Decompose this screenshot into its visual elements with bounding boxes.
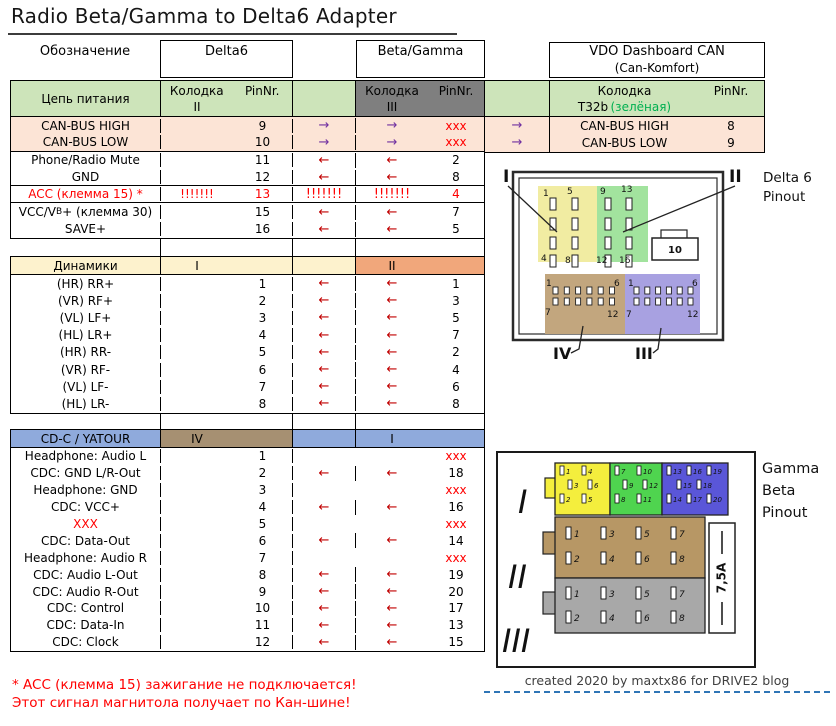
signal-label-cell: (HL) LR- (11, 397, 161, 411)
spacer-cell (233, 430, 293, 447)
table-row: CAN-BUS LOW10→→xxx (11, 134, 484, 151)
delta6-pin-cell: 15 (233, 205, 293, 219)
signal-label-cell: CDC: Data-In (11, 618, 161, 632)
table-row: CAN-BUS HIGH9→→xxx (11, 117, 484, 134)
vdo-arrow-column: →→ (484, 80, 550, 153)
spacer-cell (293, 81, 356, 116)
svg-text:1: 1 (574, 590, 580, 600)
credit-line: created 2020 by maxtx86 for DRIVE2 blog (484, 673, 830, 693)
delta6-pin-cell: 2 (233, 466, 293, 480)
signal-label-cell: CDC: Data-Out (11, 534, 161, 548)
signal-label-cell: Headphone: GND (11, 483, 161, 497)
svg-text:Beta: Beta (762, 483, 795, 499)
direction-arrow-cell: ← (293, 153, 356, 168)
column-divider (292, 239, 293, 256)
vdo-arrow-cell: → (485, 118, 549, 133)
signal-label-cell: (VR) RF- (11, 363, 161, 377)
svg-text:6: 6 (594, 482, 599, 490)
delta6-pin-cell: 5 (233, 345, 293, 359)
table-row: (HR) RR-5←←2 (11, 344, 484, 361)
svg-text:I: I (503, 167, 509, 187)
spacer-cell (485, 81, 549, 116)
delta6-pin-cell: 11 (233, 153, 293, 167)
delta6-pin-cell: 4 (233, 500, 293, 514)
gamma-beta-pinout-diagram: IIIIII1436257109128111316191518141720135… (496, 451, 830, 669)
delta6-block-header: КолодкаPinNr. II (161, 81, 293, 116)
table-row: CDC: Control10←←17 (11, 600, 484, 617)
signal-label-cell: XXX (11, 517, 161, 531)
power-header-row: Цепь питания КолодкаPinNr. II КолодкаPin… (11, 81, 484, 117)
beta-gamma-pin-cell: 1 (428, 277, 484, 291)
direction-arrow-cell: ← (293, 635, 356, 650)
svg-text:6: 6 (644, 555, 650, 565)
svg-text:8: 8 (679, 614, 685, 624)
table-row: CDC: Audio L-Out8←←19 (11, 566, 484, 583)
beta-gamma-arrow-cell: ← (356, 222, 428, 237)
column-divider (160, 239, 161, 256)
beta-gamma-pin-cell: 14 (428, 534, 484, 548)
delta6-pin-cell: 5 (233, 517, 293, 531)
beta-gamma-arrow-cell: ← (356, 500, 428, 515)
beta-gamma-arrow-cell: ← (356, 153, 428, 168)
svg-text:16: 16 (619, 256, 631, 266)
table-row: (VL) LF+3←←5 (11, 309, 484, 326)
vdo-pin-cell: 9 (699, 136, 763, 150)
signal-label-cell: (HR) RR+ (11, 277, 161, 291)
vdo-signal-label-cell: CAN-BUS HIGH (550, 119, 699, 133)
svg-text:11: 11 (643, 496, 652, 504)
beta-gamma-block-header: КолодкаPinNr. III (356, 81, 484, 116)
signal-label-cell: SAVE+ (11, 222, 161, 236)
vdo-pin-cell: 8 (699, 119, 763, 133)
spacer-cell (428, 430, 484, 447)
beta-gamma-arrow-cell: ← (356, 618, 428, 633)
svg-text:7: 7 (679, 530, 685, 540)
delta6-pin-cell: 1 (233, 449, 293, 463)
table-row: (HR) RR+1←←1 (11, 275, 484, 292)
direction-arrow-cell: → (293, 118, 356, 133)
direction-arrow-cell: ← (293, 396, 356, 411)
delta6-pin-cell: 7 (233, 551, 293, 565)
beta-gamma-pin-cell: 2 (428, 345, 484, 359)
svg-text:18: 18 (703, 482, 712, 490)
svg-text:1: 1 (574, 530, 580, 540)
beta-gamma-pin-cell: 4 (428, 363, 484, 377)
svg-text:Delta 6: Delta 6 (763, 170, 812, 186)
beta-gamma-arrow-cell: → (356, 118, 428, 133)
beta-gamma-pin-cell: 5 (428, 311, 484, 325)
svg-text:4: 4 (541, 254, 547, 264)
signal-label-cell: (VL) LF+ (11, 311, 161, 325)
signal-label-cell: Phone/Radio Mute (11, 153, 161, 167)
delta6-pin-cell: 1 (233, 277, 293, 291)
beta-gamma-arrow-cell: ← (356, 345, 428, 360)
svg-text:9: 9 (629, 482, 634, 490)
beta-gamma-arrow-cell: ← (356, 328, 428, 343)
cdc-section-table: CD-C / YATOUR IV I Headphone: Audio L1xx… (10, 429, 485, 652)
svg-text:10: 10 (668, 245, 682, 256)
signal-label-cell: CDC: Audio R-Out (11, 585, 161, 599)
signal-label-cell: ACC (клемма 15) * (11, 187, 161, 201)
delta6-pin-cell: 3 (233, 311, 293, 325)
svg-text:IV: IV (553, 344, 572, 363)
delta6-pin-cell: 7 (233, 380, 293, 394)
signal-label-cell: CDC: Clock (11, 635, 161, 649)
beta-gamma-pin-cell: 4 (428, 187, 484, 201)
direction-arrow-cell: ← (293, 618, 356, 633)
footnote-line2: Этот сигнал магнитола получает по Кан-ши… (12, 695, 357, 713)
table-row: Phone/Radio Mute11←←2 (11, 152, 484, 169)
delta6-pinout-svg: 15489131216101671216712IIIIVIIIDelta 6Pi… (495, 158, 830, 366)
vdo-subtitle: (Can-Komfort) (550, 60, 764, 76)
beta-gamma-arrow-cell: ← (356, 567, 428, 582)
vdo-title: VDO Dashboard CAN (550, 44, 764, 60)
pinnr-label: PinNr. (699, 83, 763, 99)
beta-gamma-pin-cell: xxx (428, 135, 484, 149)
direction-arrow-cell: ← (293, 276, 356, 291)
svg-text:7: 7 (621, 468, 626, 476)
svg-text:4: 4 (609, 555, 615, 565)
kolodka-color-note: (зелёная) (611, 99, 672, 115)
delta6-pinout-diagram: 15489131216101671216712IIIIVIIIDelta 6Pi… (495, 158, 830, 366)
delta6-pin-cell: 6 (233, 363, 293, 377)
table-row: Headphone: GND3xxx (11, 482, 484, 499)
delta6-pin-cell: 8 (233, 568, 293, 582)
direction-arrow-cell: → (293, 135, 356, 150)
beta-gamma-arrow-cell: ← (356, 293, 428, 308)
kolodka-number: T32b (578, 99, 608, 115)
svg-text:13: 13 (673, 468, 682, 476)
svg-text:II: II (508, 558, 527, 596)
kolodka-label: Колодка (161, 83, 232, 99)
signal-label-cell: CAN-BUS LOW (11, 135, 161, 149)
svg-text:7,5A: 7,5A (715, 562, 729, 593)
svg-text:3: 3 (609, 530, 615, 540)
beta-gamma-arrow-cell: ← (356, 170, 428, 185)
beta-gamma-pin-cell: 7 (428, 328, 484, 342)
vdo-can-table: КолодкаPinNr. T32b (зелёная) CAN-BUS HIG… (549, 80, 765, 153)
signal-label-cell: GND (11, 170, 161, 184)
table-row: VCC/VB+ (клемма 30)15←←7 (11, 203, 484, 220)
svg-text:5: 5 (644, 530, 650, 540)
column-divider (160, 413, 161, 429)
speakers-section-table: Динамики I II (HR) RR+1←←1(VR) RF+2←←3(V… (10, 256, 485, 414)
beta-gamma-arrow-cell: ← (356, 584, 428, 599)
svg-text:14: 14 (673, 496, 682, 504)
delta6-pin-cell: 3 (233, 483, 293, 497)
spacer-cell (233, 257, 293, 274)
direction-arrow-cell: ← (293, 328, 356, 343)
table-row: CDC: VCC+4←←16 (11, 499, 484, 516)
delta6-pin-cell: 4 (233, 328, 293, 342)
table-row: (VR) RF+2←←3 (11, 292, 484, 309)
direction-arrow-cell: ← (293, 310, 356, 325)
pinnr-label: PinNr. (428, 83, 484, 99)
svg-text:5: 5 (567, 187, 573, 197)
svg-text:12: 12 (687, 310, 698, 320)
svg-text:12: 12 (607, 310, 618, 320)
delta6-pin-cell: 8 (233, 397, 293, 411)
delta6-pin-cell: 2 (233, 294, 293, 308)
beta-gamma-pin-cell: xxx (428, 517, 484, 531)
beta-gamma-arrow-cell: → (356, 135, 428, 150)
page-title: Radio Beta/Gamma to Delta6 Adapter (8, 2, 457, 35)
cdc-header-row: CD-C / YATOUR IV I (11, 430, 484, 448)
kolodka-number: IV (161, 430, 233, 447)
svg-text:8: 8 (565, 256, 571, 266)
svg-text:15: 15 (683, 482, 692, 490)
beta-gamma-pin-cell: 2 (428, 153, 484, 167)
beta-gamma-pin-cell: 19 (428, 568, 484, 582)
beta-gamma-arrow-cell: ← (356, 310, 428, 325)
svg-text:17: 17 (693, 496, 702, 504)
table-row: Headphone: Audio R7xxx (11, 549, 484, 566)
table-row: GND12←←8 (11, 169, 484, 186)
beta-gamma-arrow-cell: ← (356, 635, 428, 650)
direction-arrow-cell: ← (293, 362, 356, 377)
direction-arrow-cell: ← (293, 584, 356, 599)
table-row: CDC: Clock12←←15 (11, 634, 484, 651)
beta-gamma-pin-cell: 8 (428, 170, 484, 184)
svg-text:12: 12 (649, 482, 658, 490)
svg-text:16: 16 (693, 468, 702, 476)
svg-text:2: 2 (574, 614, 580, 624)
svg-text:7: 7 (626, 310, 632, 320)
gamma-pinout-svg: IIIIII1436257109128111316191518141720135… (496, 451, 830, 669)
vdo-arrow-cell: → (485, 135, 549, 150)
column-header-delta6: Delta6 (160, 40, 293, 78)
delta6-pin-cell: 10 (233, 135, 293, 149)
svg-text:Pinout: Pinout (762, 505, 808, 521)
svg-text:2: 2 (574, 555, 580, 565)
signal-label-cell: Headphone: Audio R (11, 551, 161, 565)
direction-arrow-cell: ← (293, 466, 356, 481)
table-row: (HL) LR+4←←7 (11, 327, 484, 344)
beta-gamma-arrow-cell: !!!!!!! (356, 187, 428, 202)
table-row: CDC: Audio R-Out9←←20 (11, 583, 484, 600)
beta-gamma-pin-cell: 13 (428, 618, 484, 632)
svg-text:2: 2 (566, 496, 571, 504)
direction-arrow-cell: ← (293, 293, 356, 308)
beta-gamma-pin-cell: 7 (428, 205, 484, 219)
signal-label-cell: (VR) RF+ (11, 294, 161, 308)
delta6-kolodka-cell: !!!!!!! (161, 187, 233, 201)
table-row: (HL) LR-8←←8 (11, 395, 484, 412)
pinnr-label: PinNr. (232, 83, 292, 99)
kolodka-number: II (356, 257, 428, 274)
spacer-cell (428, 257, 484, 274)
delta6-pin-cell: 12 (233, 635, 293, 649)
svg-text:5: 5 (588, 496, 593, 504)
direction-arrow-cell: ← (293, 222, 356, 237)
delta6-pin-cell: 10 (233, 601, 293, 615)
svg-text:8: 8 (621, 496, 626, 504)
svg-text:9: 9 (600, 187, 606, 197)
signal-label-cell: VCC/VB+ (клемма 30) (11, 205, 161, 219)
column-divider (355, 413, 356, 429)
table-row: CDC: GND L/R-Out2←←18 (11, 465, 484, 482)
svg-text:7: 7 (545, 308, 551, 318)
beta-gamma-pin-cell: 3 (428, 294, 484, 308)
signal-label-cell: (HR) RR- (11, 345, 161, 359)
table-row: CAN-BUS LOW9 (550, 134, 764, 151)
beta-gamma-arrow-cell: ← (356, 396, 428, 411)
table-row: ACC (клемма 15) *!!!!!!!13!!!!!!!!!!!!!!… (11, 186, 484, 203)
beta-gamma-arrow-cell: ← (356, 601, 428, 616)
beta-gamma-arrow-cell: ← (356, 466, 428, 481)
svg-text:10: 10 (643, 468, 652, 476)
svg-text:1: 1 (628, 279, 634, 289)
footnote-line1: * ACC (клемма 15) зажигание не подключае… (12, 677, 357, 695)
beta-gamma-arrow-cell: ← (356, 205, 428, 220)
column-header-vdo: VDO Dashboard CAN (Can-Komfort) (549, 42, 765, 78)
direction-arrow-cell: ← (293, 205, 356, 220)
table-row: (VL) LF-7←←6 (11, 378, 484, 395)
delta6-pin-cell: 9 (233, 119, 293, 133)
speakers-header-row: Динамики I II (11, 257, 484, 275)
kolodka-number: I (356, 430, 428, 447)
svg-text:Gamma: Gamma (762, 461, 819, 477)
delta6-pin-cell: 9 (233, 585, 293, 599)
spacer-cell (293, 430, 356, 447)
table-row: (VR) RF-6←←4 (11, 361, 484, 378)
svg-text:3: 3 (574, 482, 578, 490)
direction-arrow-cell: ← (293, 170, 356, 185)
delta6-pin-cell: 16 (233, 222, 293, 236)
svg-text:6: 6 (614, 279, 620, 289)
beta-gamma-pin-cell: 17 (428, 601, 484, 615)
direction-arrow-cell: ← (293, 601, 356, 616)
kolodka-number: III (356, 99, 428, 115)
beta-gamma-pin-cell: 8 (428, 397, 484, 411)
signal-label-cell: CDC: Control (11, 601, 161, 615)
signal-label-cell: (HL) LR+ (11, 328, 161, 342)
svg-text:19: 19 (713, 468, 722, 476)
signal-label-cell: Headphone: Audio L (11, 449, 161, 463)
beta-gamma-arrow-cell: ← (356, 362, 428, 377)
table-row: CDC: Data-Out6←←14 (11, 532, 484, 549)
delta6-pin-cell: 11 (233, 618, 293, 632)
beta-gamma-pin-cell: 5 (428, 222, 484, 236)
table-row: CAN-BUS HIGH8 (550, 117, 764, 134)
svg-text:7: 7 (679, 590, 685, 600)
beta-gamma-arrow-cell: ← (356, 379, 428, 394)
beta-gamma-pin-cell: xxx (428, 483, 484, 497)
svg-text:12: 12 (596, 256, 607, 266)
signal-label-cell: CAN-BUS HIGH (11, 119, 161, 133)
beta-gamma-pin-cell: 6 (428, 380, 484, 394)
table-row: → (485, 134, 549, 151)
beta-gamma-pin-cell: xxx (428, 119, 484, 133)
svg-text:4: 4 (609, 614, 615, 624)
direction-arrow-cell: ← (293, 533, 356, 548)
table-row: SAVE+16←←5 (11, 221, 484, 238)
direction-arrow-cell: ← (293, 345, 356, 360)
direction-arrow-cell: ← (293, 500, 356, 515)
beta-gamma-pin-cell: 20 (428, 585, 484, 599)
table-row: → (485, 117, 549, 134)
svg-text:6: 6 (692, 279, 698, 289)
spacer-cell (293, 257, 356, 274)
svg-text:20: 20 (713, 496, 722, 504)
table-row: XXX5xxx (11, 516, 484, 533)
svg-text:6: 6 (644, 614, 650, 624)
column-header-beta-gamma: Beta/Gamma (356, 40, 485, 78)
footnote: * ACC (клемма 15) зажигание не подключае… (12, 677, 357, 712)
beta-gamma-pin-cell: xxx (428, 551, 484, 565)
beta-gamma-pin-cell: 16 (428, 500, 484, 514)
beta-gamma-pin-cell: 18 (428, 466, 484, 480)
direction-arrow-cell: ← (293, 379, 356, 394)
signal-label-cell: CDC: Audio L-Out (11, 568, 161, 582)
column-header-designation: Обозначение (10, 44, 160, 59)
svg-text:8: 8 (679, 555, 685, 565)
svg-text:4: 4 (588, 468, 592, 476)
delta6-pin-cell: 12 (233, 170, 293, 184)
signal-label-cell: CDC: VCC+ (11, 500, 161, 514)
section-label: Динамики (11, 257, 161, 274)
power-section-table: Цепь питания КолодкаPinNr. II КолодкаPin… (10, 80, 485, 239)
table-row: CDC: Data-In11←←13 (11, 617, 484, 634)
vdo-signal-label-cell: CAN-BUS LOW (550, 136, 699, 150)
beta-gamma-arrow-cell: ← (356, 276, 428, 291)
column-divider (292, 413, 293, 429)
vdo-block-header: КолодкаPinNr. T32b (зелёная) (550, 81, 764, 116)
kolodka-label: Колодка (356, 83, 428, 99)
svg-text:3: 3 (609, 590, 615, 600)
delta6-pin-cell: 6 (233, 534, 293, 548)
signal-label-cell: CDC: GND L/R-Out (11, 466, 161, 480)
signal-label-cell: (VL) LF- (11, 380, 161, 394)
section-label: Цепь питания (11, 81, 161, 116)
svg-text:Pinout: Pinout (763, 189, 805, 205)
svg-text:1: 1 (566, 468, 570, 476)
direction-arrow-cell: !!!!!!! (293, 187, 356, 202)
column-divider (484, 239, 485, 256)
section-label: CD-C / YATOUR (11, 430, 161, 447)
column-divider (484, 413, 485, 429)
svg-text:5: 5 (644, 590, 650, 600)
table-row: Headphone: Audio L1xxx (11, 448, 484, 465)
delta6-pin-cell: 13 (233, 187, 293, 201)
beta-gamma-arrow-cell: ← (356, 533, 428, 548)
svg-text:III: III (502, 622, 530, 660)
svg-text:I: I (518, 483, 527, 521)
beta-gamma-pin-cell: xxx (428, 449, 484, 463)
kolodka-number: II (161, 99, 233, 115)
svg-text:III: III (635, 344, 653, 363)
svg-text:1: 1 (543, 189, 549, 199)
svg-text:1: 1 (546, 279, 552, 289)
column-divider (355, 239, 356, 256)
direction-arrow-cell: ← (293, 567, 356, 582)
svg-text:II: II (729, 167, 742, 187)
beta-gamma-pin-cell: 15 (428, 635, 484, 649)
kolodka-number: I (161, 257, 233, 274)
kolodka-label: Колодка (550, 83, 699, 99)
svg-text:13: 13 (621, 185, 632, 195)
